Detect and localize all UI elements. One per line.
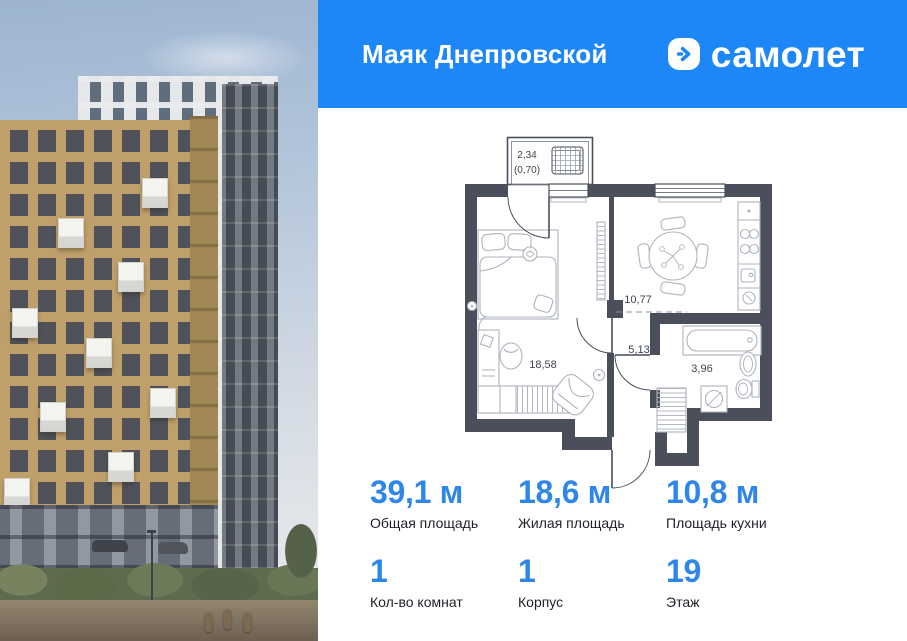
stat-value: 10,8 м [666, 476, 900, 508]
photo-bollard [205, 612, 212, 632]
project-title: Маяк Днепровской [362, 39, 608, 70]
stat-label: Жилая площадь [518, 515, 666, 531]
photo-balcony-box [40, 402, 66, 432]
stat-label: Площадь кухни [666, 515, 900, 531]
stat-label: Корпус [518, 594, 666, 610]
stat-total-area: 39,1 м Общая площадь [370, 476, 518, 531]
photo-balcony-box [118, 262, 144, 292]
photo-tree [278, 512, 318, 590]
stat-label: Этаж [666, 594, 900, 610]
photo-balcony-box [108, 452, 134, 482]
brand-logo: самолет [668, 36, 865, 73]
hallway-area-label: 5,13 [628, 344, 649, 356]
stat-label: Кол-во комнат [370, 594, 518, 610]
photo-balcony-box [150, 388, 176, 418]
photo-balcony-box [58, 218, 84, 248]
photo-balcony-box [12, 308, 38, 338]
stat-value: 18,6 м [518, 476, 666, 508]
stat-value: 1 [370, 555, 518, 587]
photo-ground [0, 600, 318, 641]
hallway-closet [657, 388, 686, 432]
balcony-reduced-area-label: (0,70) [514, 165, 540, 176]
apartment-card: Маяк Днепровской самолет [0, 0, 907, 641]
brand-name: самолет [711, 36, 865, 73]
building-photo [0, 0, 318, 641]
kitchen-area-label: 10,77 [624, 294, 652, 306]
bedroom-area-label: 18,58 [529, 359, 557, 371]
photo-balcony-box [86, 338, 112, 368]
stat-rooms: 1 Кол-во комнат [370, 555, 518, 610]
stat-label: Общая площадь [370, 515, 518, 531]
balcony-area-label: 2,34 [517, 150, 537, 161]
stat-value: 39,1 м [370, 476, 518, 508]
header-bar: Маяк Днепровской самолет [318, 0, 907, 108]
stat-living-area: 18,6 м Жилая площадь [518, 476, 666, 531]
floorplan-walls [465, 184, 772, 466]
photo-car [92, 540, 128, 552]
floorplan: 2,34 (0,70) 18,58 10,77 5,13 3,96 [455, 130, 775, 502]
stat-kitchen-area: 10,8 м Площадь кухни [666, 476, 900, 531]
samolet-logo-icon [668, 38, 700, 70]
balcony-outline [508, 138, 593, 185]
photo-street-lamp [151, 530, 153, 600]
kitchen-furniture [637, 202, 760, 310]
stat-value: 1 [518, 555, 666, 587]
photo-balcony-box [4, 478, 30, 508]
info-panel: Маяк Днепровской самолет [318, 0, 907, 641]
bathroom-area-label: 3,96 [691, 363, 712, 375]
stat-building: 1 Корпус [518, 555, 666, 610]
photo-bollard [244, 612, 251, 632]
bedroom-furniture [468, 222, 606, 418]
photo-bollard [224, 609, 231, 629]
stat-floor: 19 Этаж [666, 555, 900, 610]
stat-value: 19 [666, 555, 900, 587]
photo-balcony-box [142, 178, 168, 208]
stats-grid: 39,1 м Общая площадь 18,6 м Жилая площад… [370, 476, 900, 610]
